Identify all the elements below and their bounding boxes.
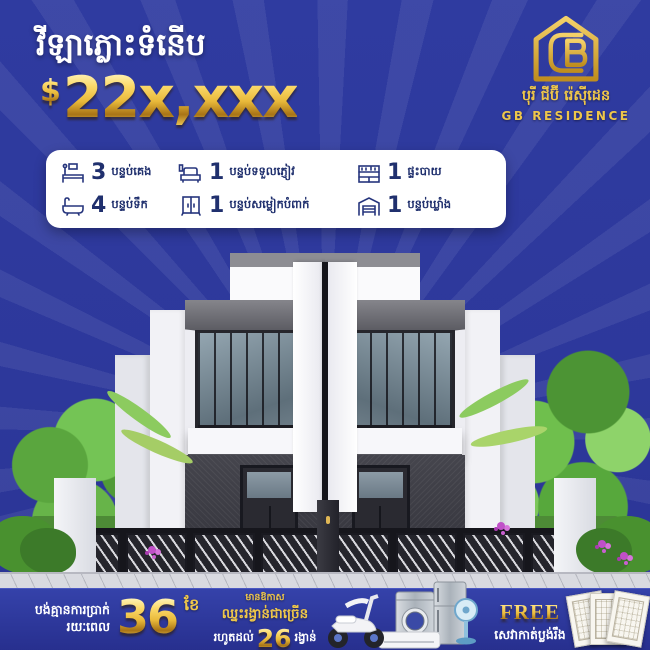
feature-count: 1 bbox=[387, 195, 402, 217]
prizes-bold-text: ឈ្នះរង្វាន់ជាច្រើន bbox=[196, 605, 334, 625]
flowers bbox=[497, 522, 505, 530]
gate-post bbox=[317, 500, 339, 580]
kitchen-icon bbox=[356, 162, 382, 184]
prizes-small-text: មានឱកាស bbox=[196, 591, 334, 605]
feature-box: 3 បន្ទប់គេង 1 បន្ទប់ទទួលភ្ញៀវ 1 ផ្ទះបាយ bbox=[46, 150, 506, 228]
scooter-icon bbox=[328, 596, 384, 648]
feature-count: 1 bbox=[209, 162, 224, 184]
feature-label: បន្ទប់ឃ្លាំង bbox=[407, 197, 451, 214]
brand-name-latin: GB RESIDENCE bbox=[490, 109, 642, 123]
installment-offer: បង់គ្មានការប្រាក់ រយៈពេល 36 ខែ bbox=[6, 596, 199, 640]
bush bbox=[20, 528, 76, 574]
feature-bathrooms: 4 បន្ទប់ទឹក bbox=[60, 195, 178, 217]
free-service-text: សេវាកាត់ប្លង់រឹង bbox=[482, 627, 578, 646]
feature-count: 4 bbox=[91, 195, 106, 217]
poster: វីឡាភ្លោះទំនើប $ 22x,xxx បុរី ជីប៊ី រ៉េស… bbox=[0, 0, 650, 650]
feature-count: 3 bbox=[91, 162, 106, 184]
price-amount: 22x,xxx bbox=[63, 70, 297, 127]
center-seam bbox=[322, 262, 328, 507]
air-conditioner-icon bbox=[378, 632, 440, 648]
prizes-number: 26 bbox=[257, 626, 292, 650]
document-page bbox=[606, 590, 650, 647]
bathtub-icon bbox=[60, 195, 86, 217]
feature-bedrooms: 3 បន្ទប់គេង bbox=[60, 162, 178, 184]
bush bbox=[576, 528, 632, 574]
feature-label: បន្ទប់សម្លៀកបំពាក់ bbox=[229, 197, 309, 214]
feature-wardrobe: 1 បន្ទប់សម្លៀកបំពាក់ bbox=[178, 195, 356, 217]
price-currency: $ bbox=[40, 74, 61, 109]
villa-unit-right bbox=[325, 250, 540, 575]
feature-kitchen: 1 ផ្ទះបាយ bbox=[356, 162, 486, 184]
price: $ 22x,xxx bbox=[40, 70, 297, 127]
promo-band: បង់គ្មានការប្រាក់ រយៈពេល 36 ខែ មានឱកាស ឈ… bbox=[0, 588, 650, 650]
feature-label: ផ្ទះបាយ bbox=[407, 164, 441, 181]
prizes-suffix: រង្វាន់ bbox=[295, 630, 317, 647]
brand-name-khmer: បុរី ជីប៊ី រ៉េស៊ីដេន bbox=[490, 87, 642, 108]
feature-label: បន្ទប់ទឹក bbox=[111, 197, 148, 214]
feature-livingroom: 1 បន្ទប់ទទួលភ្ញៀវ bbox=[178, 162, 356, 184]
flowers bbox=[620, 552, 628, 560]
title-deed-documents bbox=[570, 593, 648, 649]
flowers bbox=[598, 540, 606, 548]
prize-appliances-illustration bbox=[322, 576, 478, 650]
feature-label: បន្ទប់ទទួលភ្ញៀវ bbox=[229, 164, 294, 181]
feature-label: បន្ទប់គេង bbox=[111, 164, 151, 181]
prizes-offer: មានឱកាស ឈ្នះរង្វាន់ជាច្រើន រហូតដល់ 26 រង… bbox=[196, 591, 334, 650]
wardrobe-icon bbox=[178, 195, 204, 217]
prizes-upto: រហូតដល់ bbox=[214, 630, 254, 647]
feature-storage: 1 បន្ទប់ឃ្លាំង bbox=[356, 195, 486, 217]
bed-icon bbox=[60, 162, 86, 184]
free-label: FREE bbox=[482, 600, 578, 625]
flowers bbox=[148, 546, 156, 554]
installment-number: 36 bbox=[117, 596, 177, 640]
installment-line2: រយៈពេល bbox=[6, 619, 110, 636]
gb-house-logo-icon bbox=[531, 14, 601, 84]
free-offer: FREE សេវាកាត់ប្លង់រឹង bbox=[482, 600, 578, 646]
sofa-icon bbox=[178, 162, 204, 184]
feature-count: 1 bbox=[209, 195, 224, 217]
brand-logo: បុរី ជីប៊ី រ៉េស៊ីដេន GB RESIDENCE bbox=[490, 14, 642, 123]
storage-icon bbox=[356, 195, 382, 217]
installment-line1: បង់គ្មានការប្រាក់ bbox=[6, 602, 110, 619]
feature-count: 1 bbox=[387, 162, 402, 184]
